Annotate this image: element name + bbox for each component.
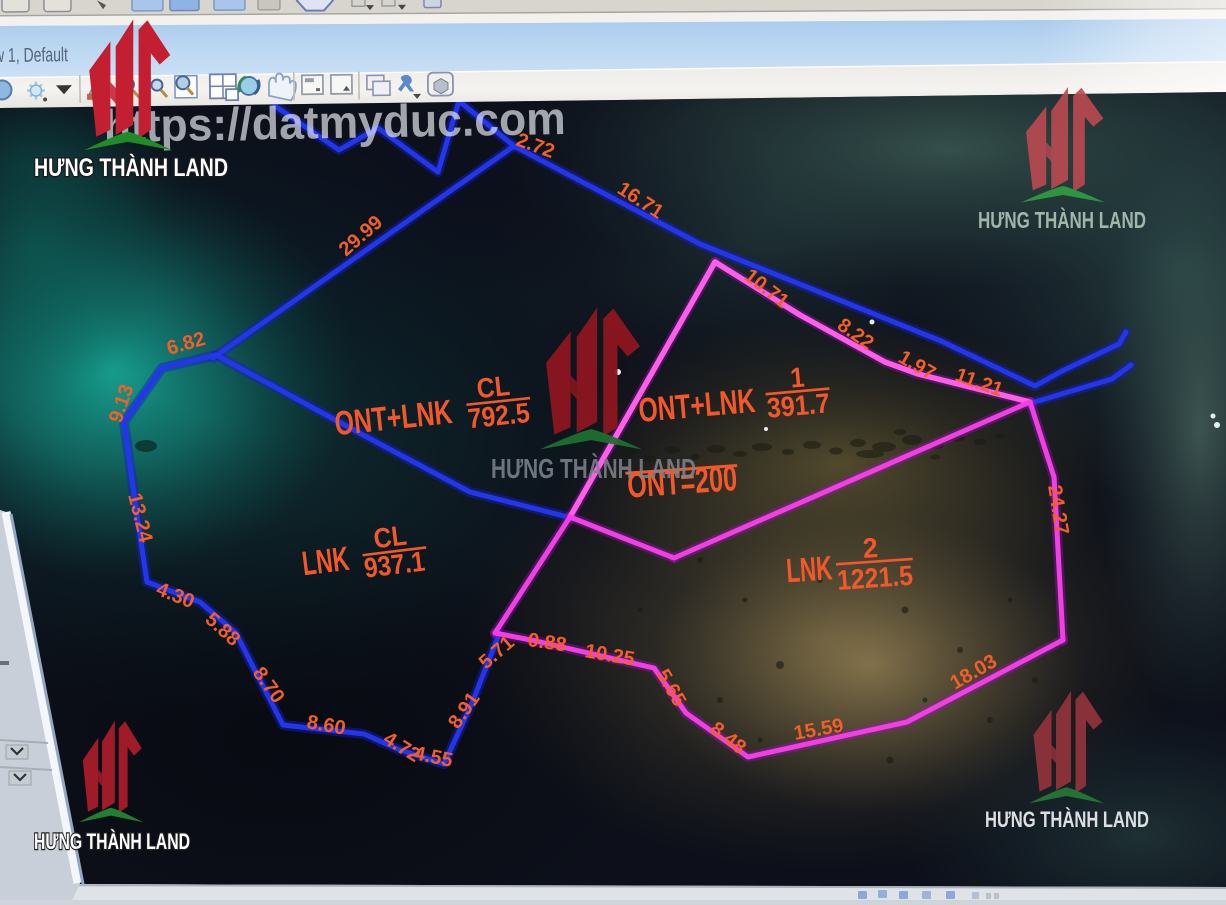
svg-text:LNK: LNK <box>785 549 834 590</box>
svg-text:HƯNG THÀNH LAND: HƯNG THÀNH LAND <box>491 453 696 484</box>
svg-text:HƯNG THÀNH LAND: HƯNG THÀNH LAND <box>34 829 190 854</box>
svg-text:HƯNG THÀNH LAND: HƯNG THÀNH LAND <box>985 807 1149 832</box>
svg-text:HƯNG THÀNH LAND: HƯNG THÀNH LAND <box>978 206 1146 233</box>
svg-text:391.7: 391.7 <box>766 387 831 423</box>
svg-text:w 1, Default: w 1, Default <box>0 44 68 67</box>
svg-text:LNK: LNK <box>300 540 352 583</box>
svg-text:1221.5: 1221.5 <box>836 560 914 596</box>
svg-text:2: 2 <box>862 532 879 564</box>
svg-text:792.5: 792.5 <box>466 397 531 434</box>
svg-text:HƯNG THÀNH LAND: HƯNG THÀNH LAND <box>34 153 228 182</box>
